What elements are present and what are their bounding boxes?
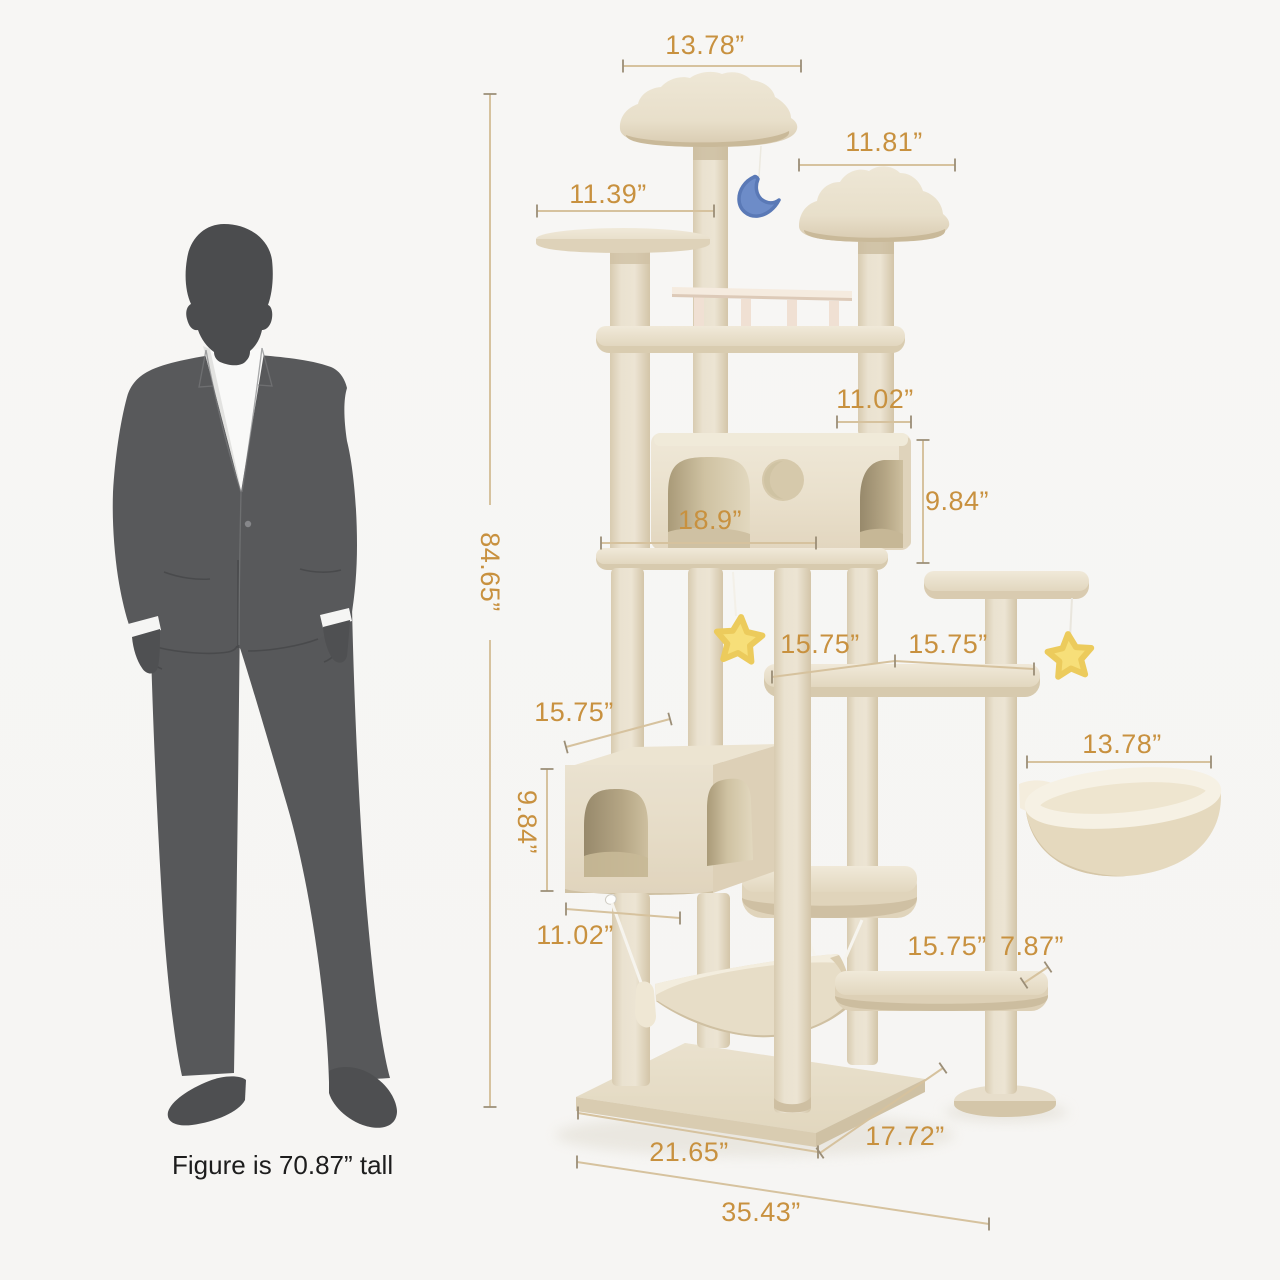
svg-text:13.78”: 13.78” xyxy=(665,30,745,60)
svg-text:11.39”: 11.39” xyxy=(569,179,647,209)
svg-text:9.84”: 9.84” xyxy=(925,486,989,516)
svg-text:11.81”: 11.81” xyxy=(845,127,923,157)
svg-text:15.75”: 15.75” xyxy=(534,697,614,727)
svg-text:11.02”: 11.02” xyxy=(536,920,614,950)
svg-text:15.75”: 15.75” xyxy=(908,629,988,659)
svg-text:13.78”: 13.78” xyxy=(1082,729,1162,759)
svg-text:Figure is 70.87” tall: Figure is 70.87” tall xyxy=(172,1150,393,1180)
svg-text:21.65”: 21.65” xyxy=(649,1137,729,1167)
svg-text:11.02”: 11.02” xyxy=(836,384,914,414)
svg-text:9.84”: 9.84” xyxy=(512,790,542,854)
svg-text:7.87”: 7.87” xyxy=(1000,931,1064,961)
svg-text:84.65”: 84.65” xyxy=(475,532,505,612)
svg-text:17.72”: 17.72” xyxy=(865,1121,945,1151)
svg-text:15.75”: 15.75” xyxy=(780,629,860,659)
svg-text:35.43”: 35.43” xyxy=(721,1197,801,1227)
svg-text:18.9”: 18.9” xyxy=(678,505,742,535)
svg-text:15.75”: 15.75” xyxy=(907,931,987,961)
